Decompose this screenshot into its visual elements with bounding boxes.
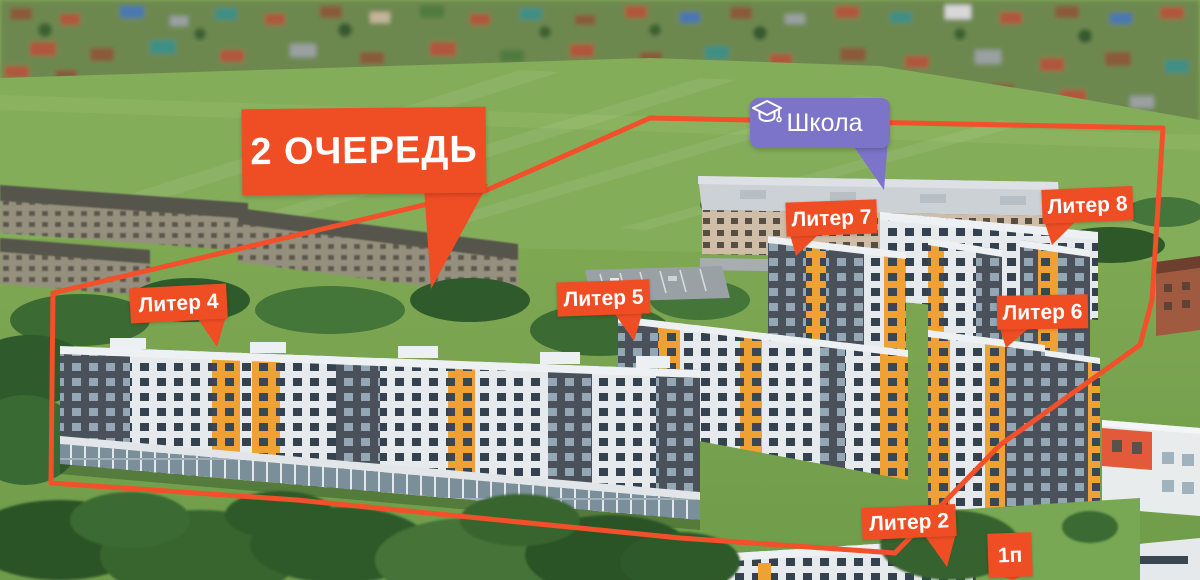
school-label[interactable]: Школа <box>750 98 890 148</box>
label-liter-7-text: Литер 7 <box>791 206 872 230</box>
label-liter-8-text: Литер 8 <box>1047 193 1128 217</box>
label-liter-5[interactable]: Литер 5 <box>556 279 650 316</box>
labels-layer: 2 ОЧЕРЕДЬ Школа Литер 4 Литер 5 Литер 7 … <box>0 0 1200 580</box>
label-liter-8[interactable]: Литер 8 <box>1041 186 1133 224</box>
phase-2-callout[interactable]: 2 ОЧЕРЕДЬ <box>242 107 487 196</box>
label-liter-6-text: Литер 6 <box>1002 301 1082 323</box>
label-liter-5-text: Литер 5 <box>563 286 644 310</box>
label-phase-1-text: 1п <box>997 544 1022 566</box>
phase-2-callout-text: 2 ОЧЕРЕДЬ <box>250 128 478 173</box>
label-liter-6[interactable]: Литер 6 <box>997 294 1089 330</box>
label-liter-2[interactable]: Литер 2 <box>861 504 956 540</box>
label-liter-2-text: Литер 2 <box>869 510 950 534</box>
label-liter-7[interactable]: Литер 7 <box>785 199 877 236</box>
masterplan-image: 2 ОЧЕРЕДЬ Школа Литер 4 Литер 5 Литер 7 … <box>0 0 1200 580</box>
label-liter-4[interactable]: Литер 4 <box>129 283 228 323</box>
school-label-text: Школа <box>787 109 863 138</box>
label-phase-1[interactable]: 1п <box>987 532 1033 578</box>
label-liter-4-text: Литер 4 <box>138 291 219 316</box>
